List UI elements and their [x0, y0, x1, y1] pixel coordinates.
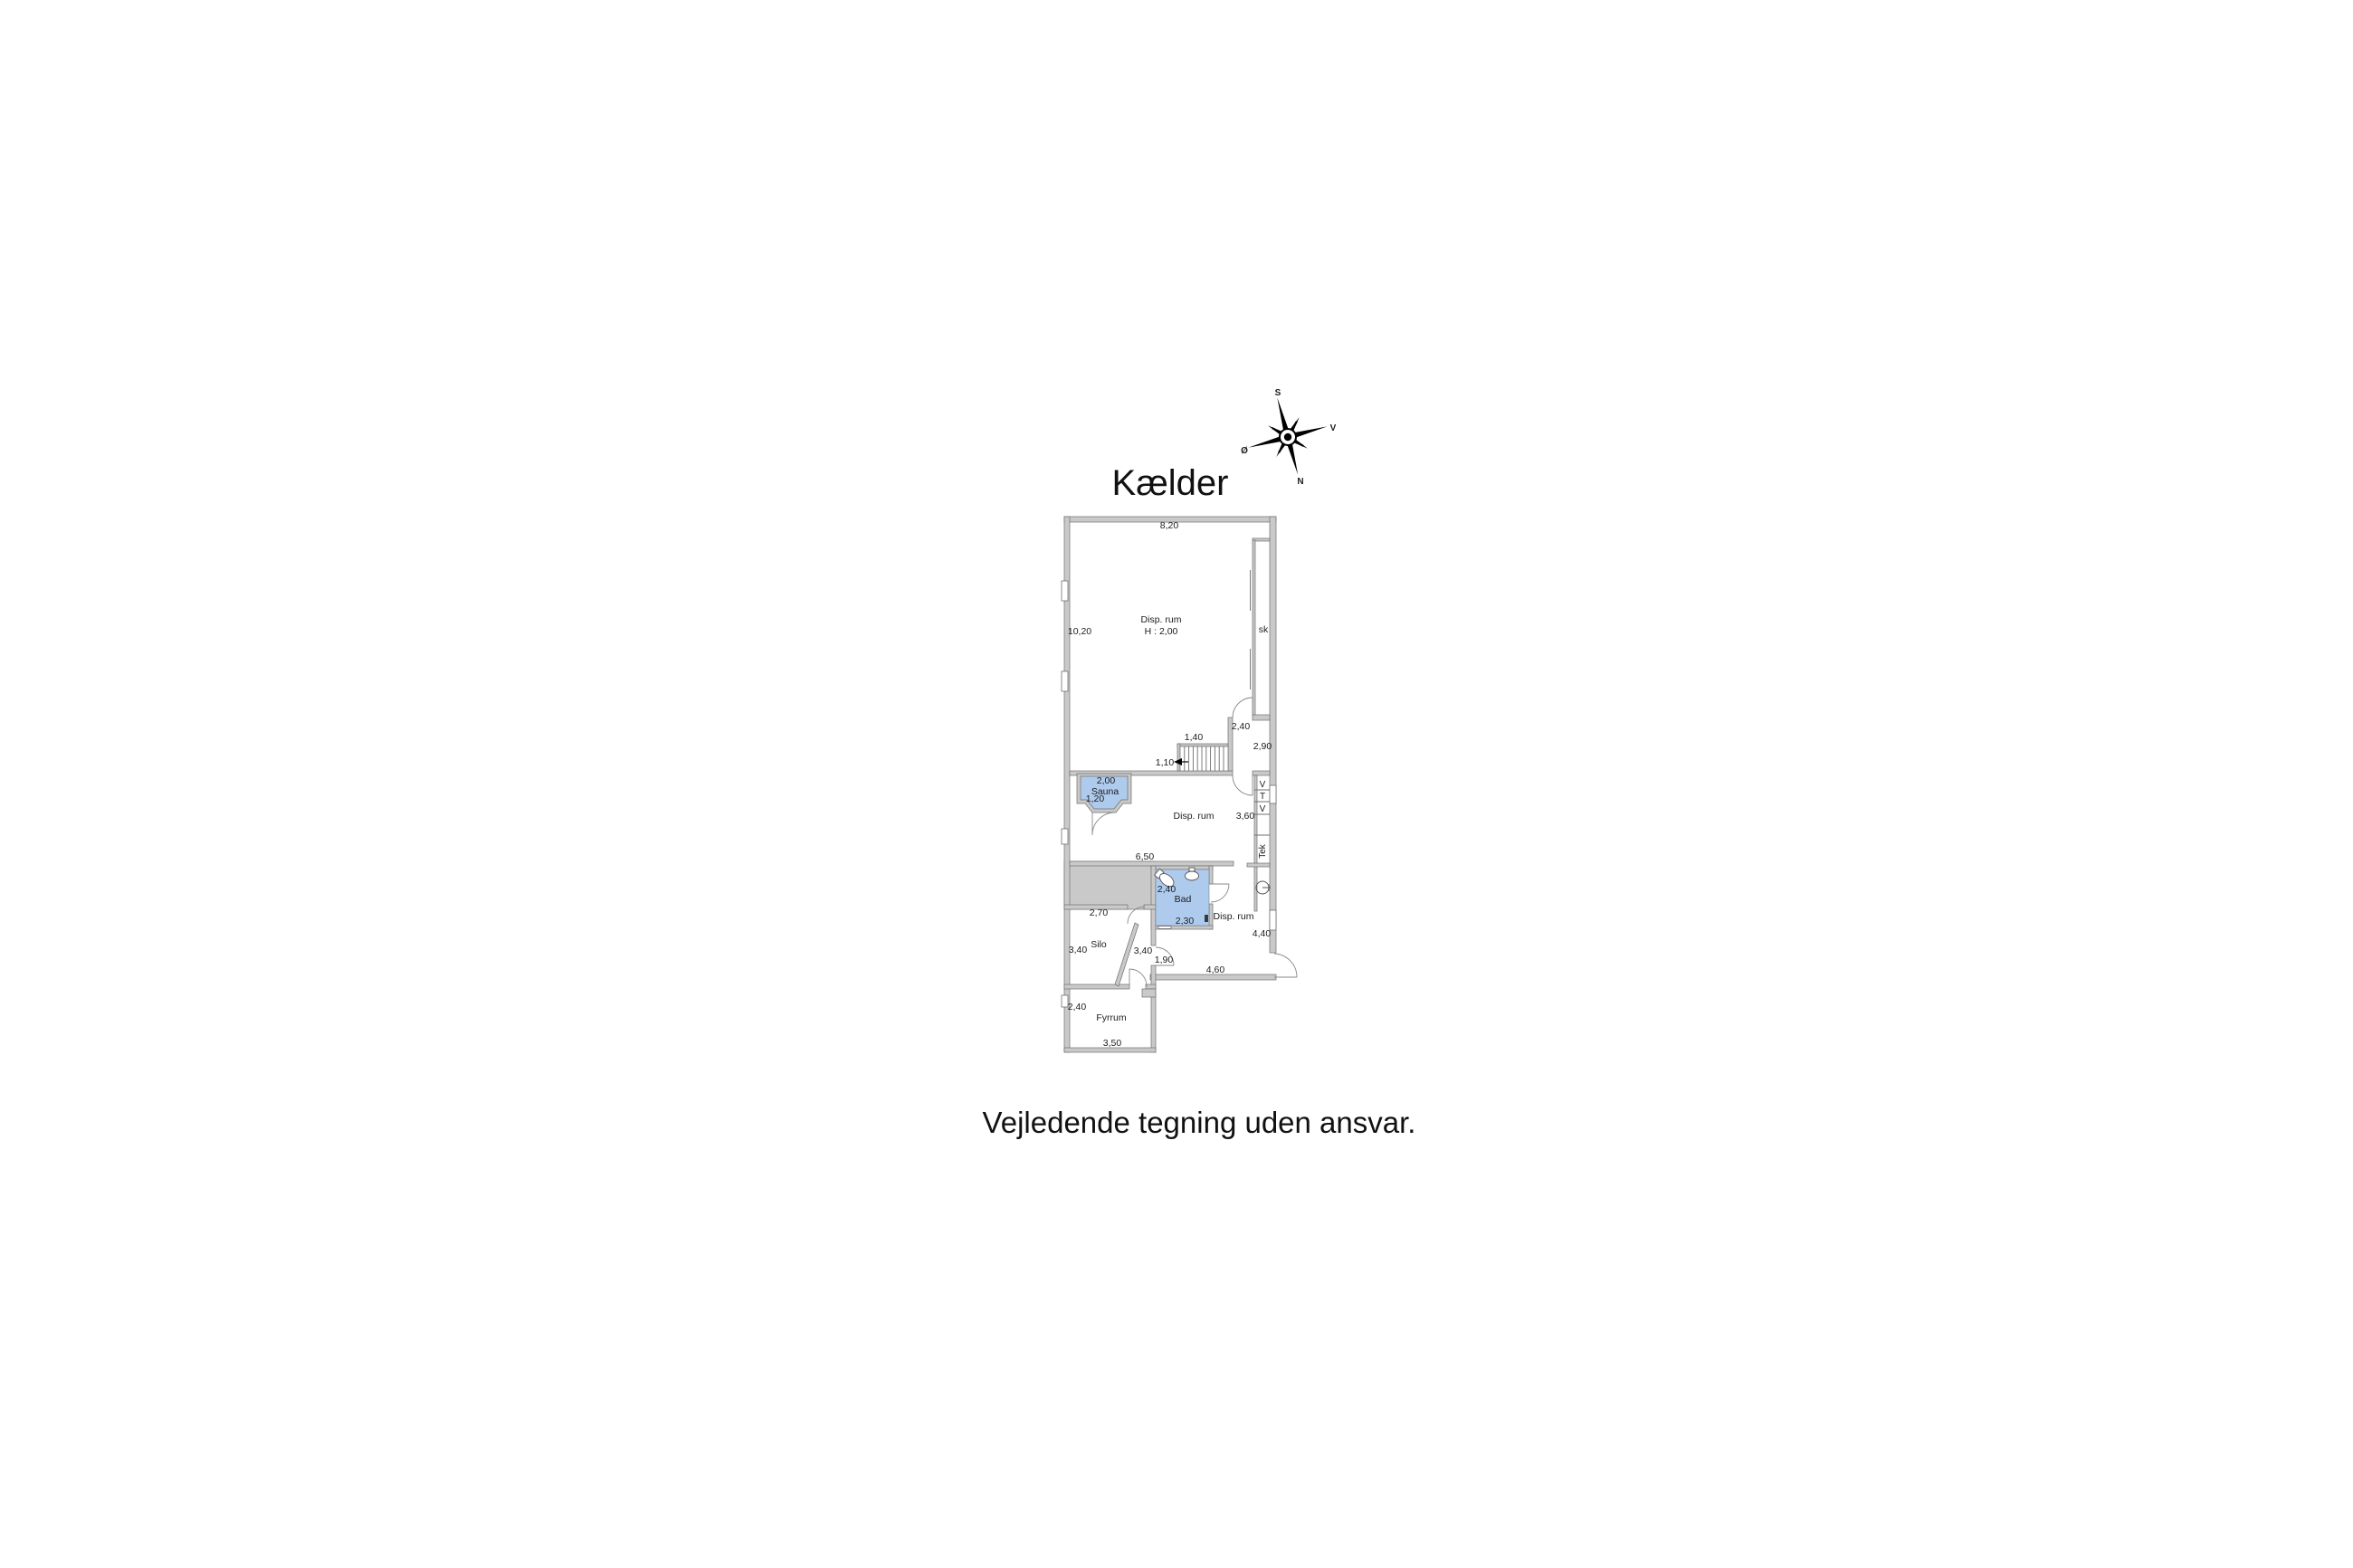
dim-stairs-run: 1,10	[1156, 757, 1175, 768]
dim-lower-depth: 4,40	[1253, 928, 1272, 939]
room-silo-label: Silo	[1091, 939, 1107, 950]
solid-area	[1064, 861, 1156, 909]
page: Kælder S V N Ø	[0, 0, 2353, 1568]
compartment-t: T	[1260, 792, 1265, 802]
room-top-height: H : 2,00	[1145, 626, 1178, 637]
dim-silo-width: 2,70	[1090, 908, 1109, 918]
dim-boiler-window: 2,40	[1068, 1002, 1087, 1012]
compartment-v2: V	[1260, 804, 1266, 814]
dim-middle-depth: 3,60	[1236, 811, 1255, 822]
dim-sauna-width: 2,00	[1097, 775, 1116, 786]
dim-sauna-depth: 1,20	[1086, 794, 1105, 804]
dim-passage: 1,90	[1155, 955, 1174, 965]
room-boiler-label: Fyrrum	[1096, 1012, 1126, 1023]
dim-silo-depth: 3,40	[1069, 945, 1088, 955]
compass-rose-icon: S V N Ø	[1238, 387, 1338, 487]
dim-stairs-width: 1,40	[1185, 732, 1204, 743]
room-bath-label: Bad	[1175, 894, 1192, 905]
water-heater-icon	[1256, 881, 1271, 894]
dim-landing-width: 2,40	[1232, 721, 1251, 732]
dim-lower-width: 4,60	[1206, 965, 1225, 975]
dim-top-width: 8,20	[1160, 520, 1179, 531]
compartment-v1: V	[1260, 780, 1266, 790]
floor-plan-drawing: S V N Ø	[1041, 385, 1339, 1090]
dim-boiler-width: 3,50	[1103, 1038, 1122, 1049]
disclaimer-text: Vejledende tegning uden ansvar.	[928, 1106, 1471, 1140]
room-middle-label: Disp. rum	[1174, 811, 1215, 822]
dim-top-depth: 10,20	[1068, 626, 1091, 637]
dim-bath-width: 2,30	[1176, 916, 1195, 927]
staircase	[1174, 744, 1228, 771]
room-top-label: Disp. rum	[1141, 614, 1182, 625]
drain-mark	[1205, 915, 1208, 922]
room-tech-label: Tek	[1258, 843, 1268, 859]
compass-east: Ø	[1241, 446, 1248, 456]
dim-corridor-depth: 3,40	[1134, 946, 1153, 956]
dim-landing-depth: 2,90	[1253, 741, 1272, 752]
room-closet-label: sk	[1259, 624, 1269, 635]
compass-west: V	[1330, 423, 1337, 433]
room-lower-label: Disp. rum	[1214, 911, 1254, 922]
compass-south: S	[1275, 388, 1281, 398]
compass-north: N	[1297, 477, 1303, 487]
dim-bath-depth: 2,40	[1157, 884, 1176, 895]
dim-middle-width: 6,50	[1136, 851, 1155, 862]
